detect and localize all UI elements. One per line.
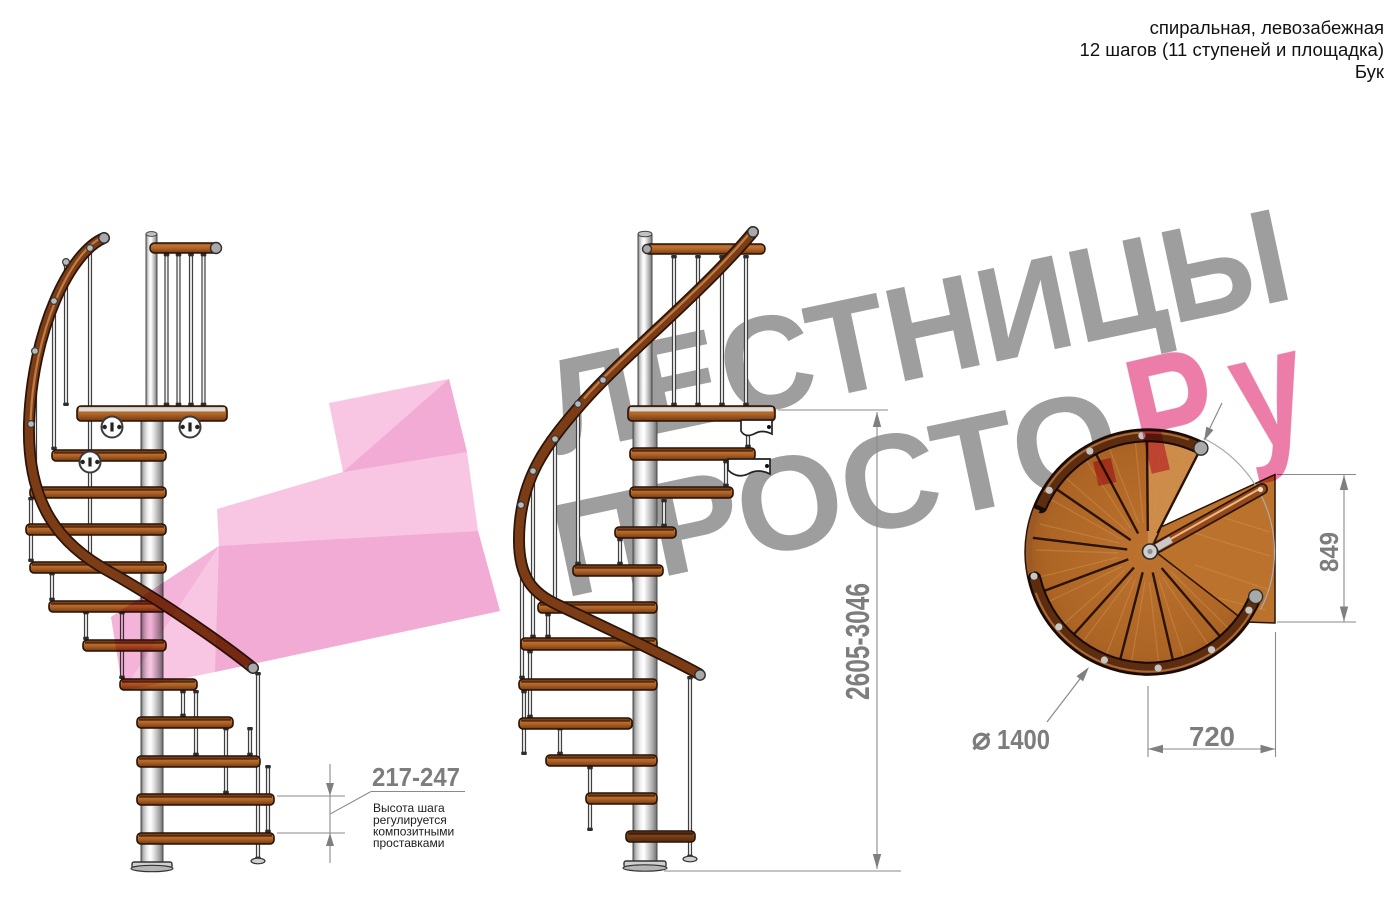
svg-text:проставками: проставками	[373, 836, 444, 850]
svg-text:12 шагов (11 ступеней и площад: 12 шагов (11 ступеней и площадка)	[1080, 39, 1384, 60]
svg-text:849: 849	[1314, 532, 1344, 572]
svg-text:720: 720	[1189, 721, 1235, 752]
svg-text:1400: 1400	[997, 724, 1050, 755]
svg-text:⌀: ⌀	[972, 721, 991, 756]
svg-text:Бук: Бук	[1355, 61, 1385, 82]
svg-text:спиральная, левозабежная: спиральная, левозабежная	[1150, 17, 1384, 38]
svg-text:217-247: 217-247	[372, 762, 460, 792]
svg-text:2605-3046: 2605-3046	[839, 583, 876, 700]
